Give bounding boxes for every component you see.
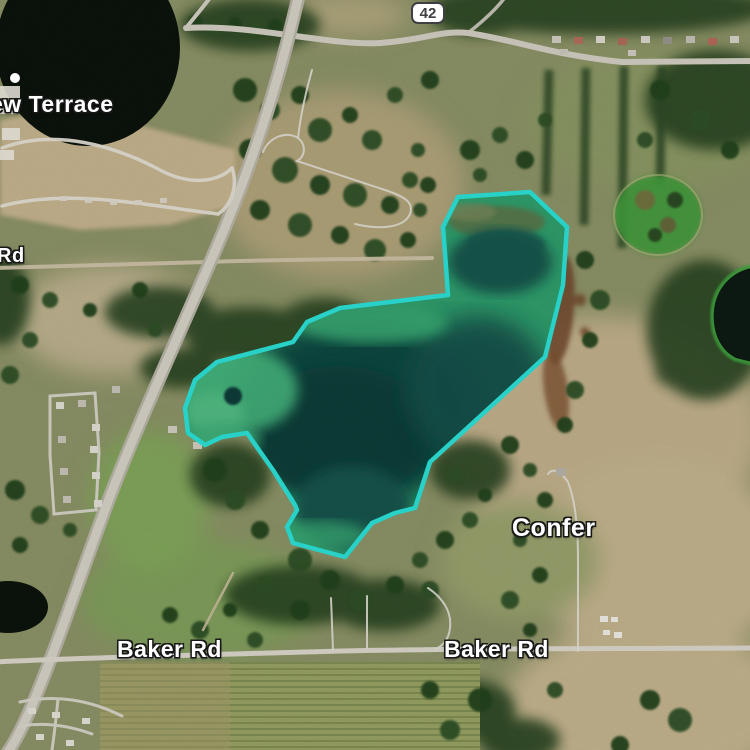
poi-marker-dot[interactable] bbox=[10, 73, 20, 83]
map-label-rd: Rd bbox=[0, 245, 25, 268]
route-42-shield: 42 bbox=[411, 2, 445, 24]
map-label-baker-rd-west: Baker Rd bbox=[117, 636, 222, 663]
map-label-baker-rd-east: Baker Rd bbox=[444, 636, 549, 663]
map-label-terrace: ew Terrace bbox=[0, 91, 113, 118]
route-42-number: 42 bbox=[420, 5, 437, 22]
map-label-confer: Confer bbox=[512, 514, 596, 543]
satellite-map-canvas[interactable]: ew Terrace Rd Confer Baker Rd Baker Rd 4… bbox=[0, 0, 750, 750]
